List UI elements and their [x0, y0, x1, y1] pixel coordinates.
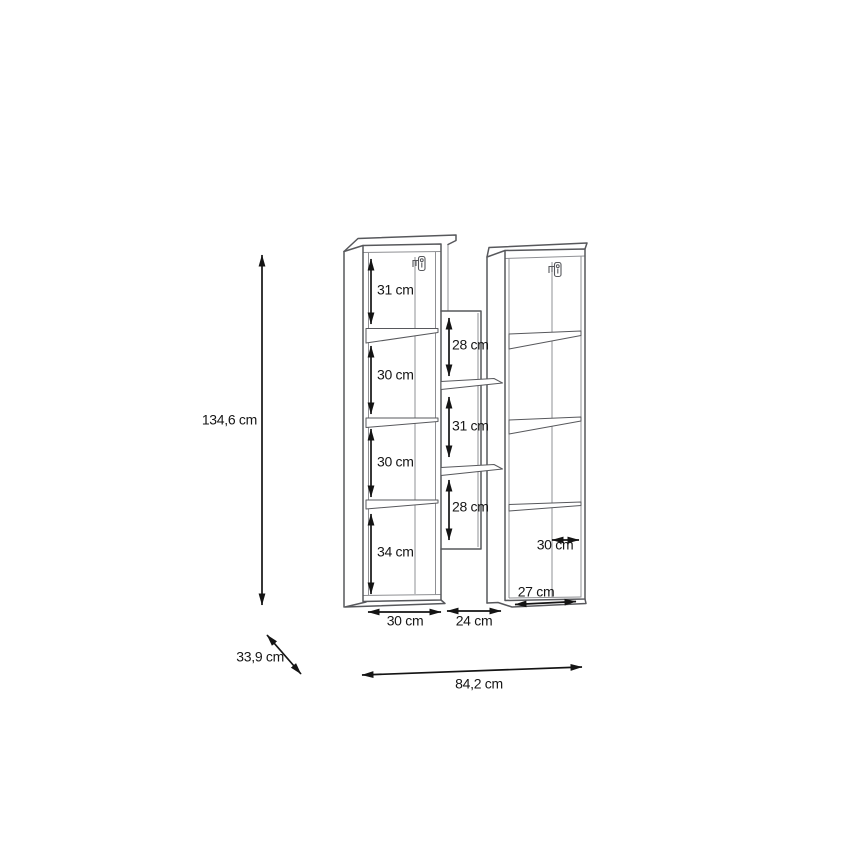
right-column-side-panel	[487, 251, 505, 604]
dim-label-left-width: 30 cm	[387, 612, 424, 628]
shelf	[509, 502, 581, 511]
dim-label-left-compartment-3: 30 cm	[377, 454, 414, 470]
drawing-svg: 31 cm 30 cm 30 cm 34 cm 28 cm 31 cm 28 c…	[0, 0, 868, 868]
dimension-arrows	[262, 255, 582, 675]
dim-label-left-compartment-2: 30 cm	[377, 367, 414, 383]
shelf	[509, 331, 581, 349]
dim-label-middle-compartment-1: 28 cm	[452, 337, 489, 353]
shelf	[366, 329, 438, 344]
dim-label-right-bottom-width: 27 cm	[518, 584, 555, 600]
dim-label-right-depth: 30 cm	[537, 537, 574, 553]
dim-label-middle-compartment-3: 28 cm	[452, 499, 489, 515]
shelf	[441, 465, 503, 476]
dim-label-left-compartment-4: 34 cm	[377, 544, 414, 560]
furniture-technical-drawing: 31 cm 30 cm 30 cm 34 cm 28 cm 31 cm 28 c…	[0, 0, 868, 868]
dim-label-overall-height: 134,6 cm	[202, 412, 257, 428]
left-column-inner-bottom-edge	[363, 595, 441, 596]
wall-mount-bracket-icon	[549, 263, 561, 277]
dim-label-middle-width: 24 cm	[456, 612, 493, 628]
dim-label-overall-depth: 33,9 cm	[236, 649, 284, 665]
shelf	[509, 417, 581, 434]
shelf	[441, 379, 503, 390]
dim-line-overall-width	[362, 667, 582, 675]
left-column-side-panel	[344, 246, 363, 608]
shelf	[366, 418, 438, 428]
shelf	[366, 500, 438, 509]
left-column-top-face	[344, 235, 456, 252]
dim-label-overall-width: 84,2 cm	[455, 675, 503, 691]
left-column-inner-top-edge	[363, 252, 441, 253]
dim-label-middle-compartment-2: 31 cm	[452, 418, 489, 434]
dim-label-left-compartment-1: 31 cm	[377, 282, 414, 298]
right-column-inner-top-edge	[505, 256, 585, 259]
